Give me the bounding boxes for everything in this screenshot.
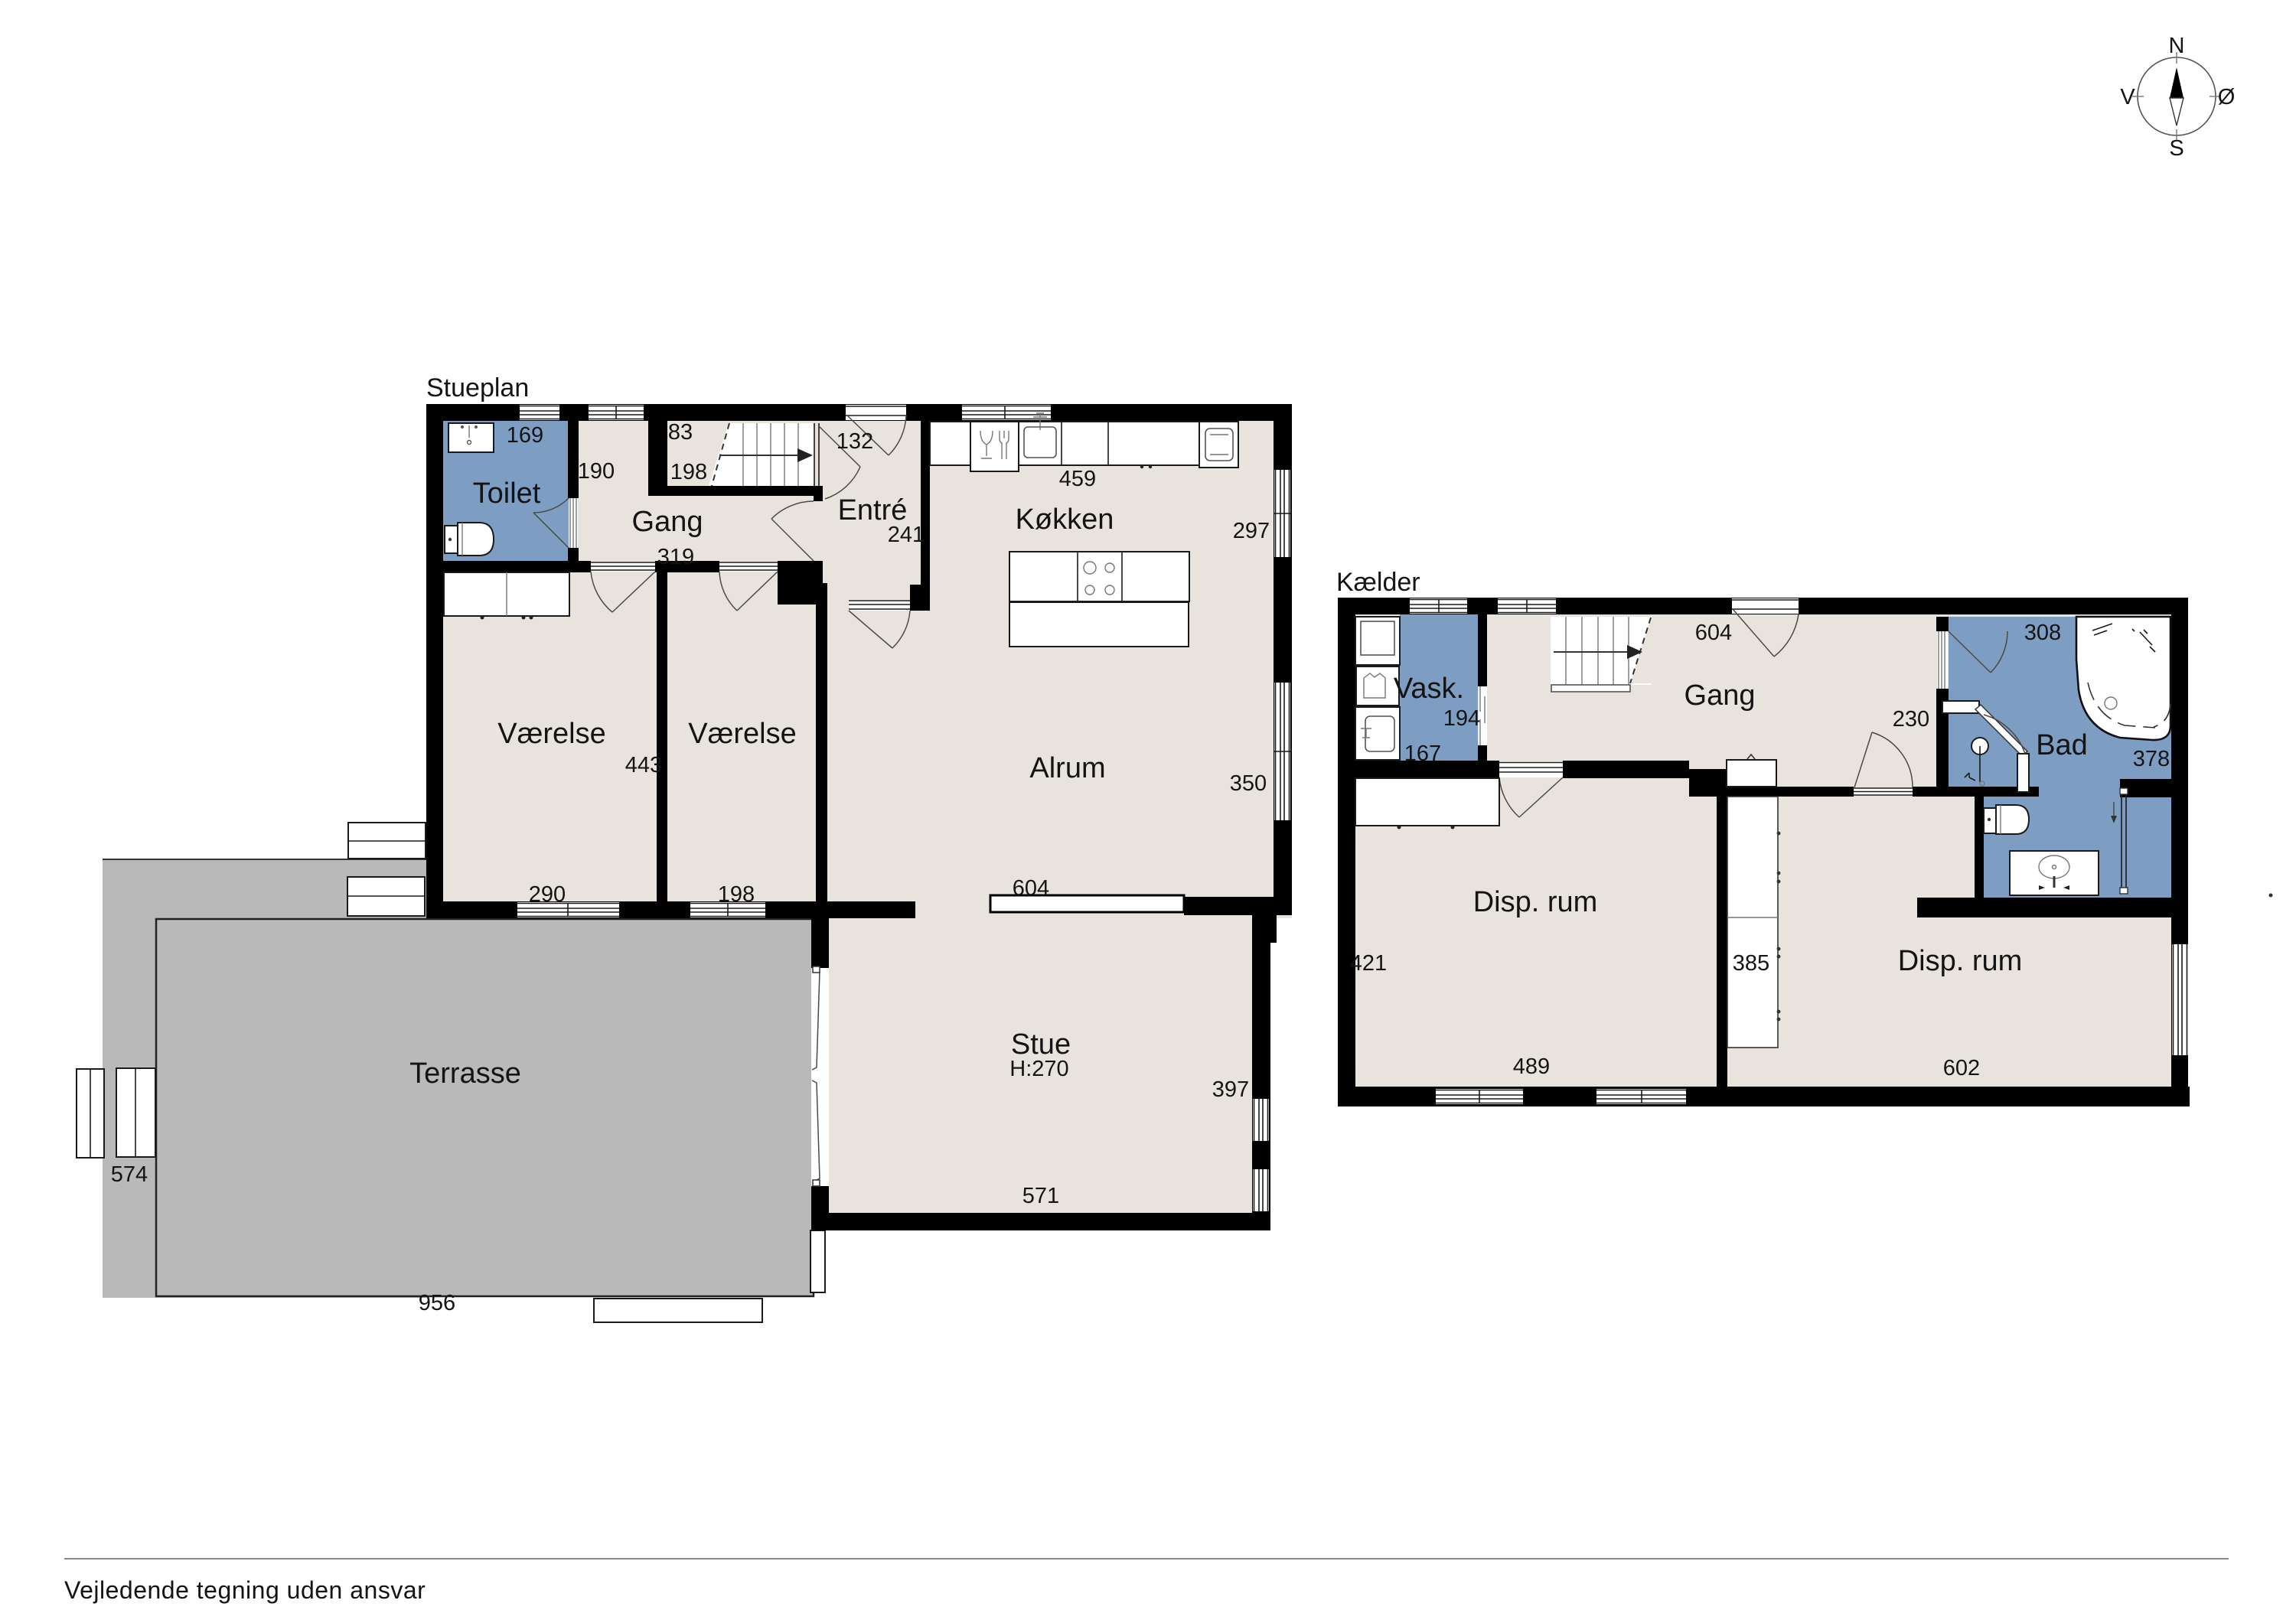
svg-text:297: 297 bbox=[1233, 519, 1270, 543]
svg-text:574: 574 bbox=[111, 1162, 148, 1187]
svg-text:459: 459 bbox=[1059, 467, 1096, 491]
svg-text:Toilet: Toilet bbox=[473, 477, 541, 510]
svg-text:Vejledende tegning uden ansvar: Vejledende tegning uden ansvar bbox=[64, 1576, 426, 1604]
svg-text:Vask.: Vask. bbox=[1394, 673, 1464, 705]
svg-text:198: 198 bbox=[670, 460, 707, 484]
svg-text:230: 230 bbox=[1893, 707, 1929, 732]
svg-text:Kælder: Kælder bbox=[1336, 568, 1420, 597]
svg-text:604: 604 bbox=[1013, 876, 1049, 901]
svg-text:956: 956 bbox=[419, 1291, 455, 1315]
svg-text:Køkken: Køkken bbox=[1016, 504, 1114, 536]
svg-text:N: N bbox=[2169, 34, 2185, 58]
svg-text:167: 167 bbox=[1404, 741, 1441, 766]
svg-text:443: 443 bbox=[625, 753, 662, 777]
svg-text:S: S bbox=[2169, 136, 2183, 161]
svg-text:Gang: Gang bbox=[1684, 680, 1756, 712]
svg-text:Værelse: Værelse bbox=[688, 718, 797, 750]
svg-text:604: 604 bbox=[1695, 621, 1732, 645]
svg-text:350: 350 bbox=[1230, 771, 1267, 796]
svg-text:Ø: Ø bbox=[2218, 85, 2236, 109]
svg-text:194: 194 bbox=[1443, 706, 1480, 731]
svg-text:Disp. rum: Disp. rum bbox=[1898, 945, 2023, 977]
svg-text:Gang: Gang bbox=[632, 506, 703, 538]
svg-text:571: 571 bbox=[1022, 1184, 1059, 1208]
svg-text:Værelse: Værelse bbox=[497, 718, 606, 750]
svg-text:385: 385 bbox=[1733, 951, 1769, 976]
svg-text:132: 132 bbox=[837, 429, 873, 454]
svg-text:602: 602 bbox=[1943, 1056, 1980, 1080]
svg-text:Stueplan: Stueplan bbox=[426, 373, 529, 402]
svg-text:Bad: Bad bbox=[2036, 729, 2088, 761]
svg-text:169: 169 bbox=[507, 423, 543, 448]
svg-text:241: 241 bbox=[888, 523, 925, 547]
svg-text:198: 198 bbox=[718, 882, 755, 907]
svg-text:V: V bbox=[2120, 85, 2135, 109]
svg-text:83: 83 bbox=[668, 420, 693, 445]
svg-text:Terrasse: Terrasse bbox=[409, 1058, 521, 1090]
svg-text:308: 308 bbox=[2024, 621, 2061, 645]
svg-text:H:270: H:270 bbox=[1009, 1057, 1068, 1081]
svg-text:421: 421 bbox=[1350, 951, 1387, 976]
svg-text:Stue: Stue bbox=[1011, 1028, 1071, 1061]
svg-text:378: 378 bbox=[2133, 747, 2170, 771]
svg-text:Disp. rum: Disp. rum bbox=[1473, 886, 1598, 918]
svg-text:489: 489 bbox=[1513, 1054, 1550, 1079]
svg-text:190: 190 bbox=[578, 459, 615, 484]
svg-text:319: 319 bbox=[657, 545, 694, 569]
svg-text:290: 290 bbox=[529, 882, 566, 907]
svg-text:397: 397 bbox=[1212, 1077, 1249, 1102]
svg-text:Entré: Entré bbox=[838, 494, 908, 526]
svg-text:Alrum: Alrum bbox=[1029, 752, 1105, 784]
